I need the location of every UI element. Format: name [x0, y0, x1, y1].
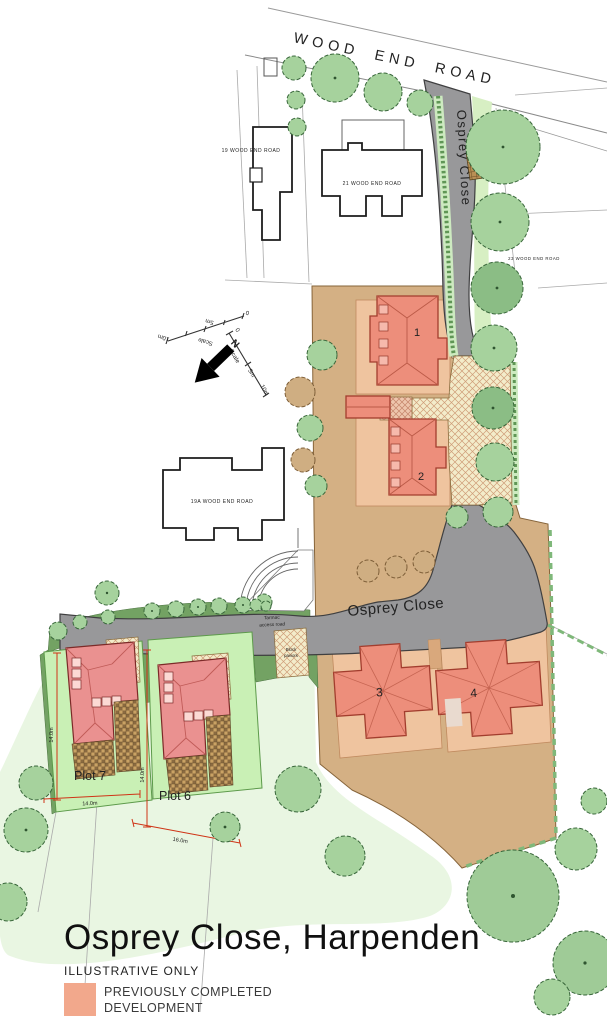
dim-plot7-depth: 14.0m	[49, 727, 55, 743]
tree	[275, 766, 321, 812]
label-21-wood-end-road: 21 WOOD END ROAD	[343, 181, 402, 187]
bush	[250, 599, 262, 611]
label-19-wood-end-road: 19 WOOD END ROAD	[222, 148, 281, 154]
tree	[413, 551, 435, 573]
tree	[407, 90, 433, 116]
legend: PREVIOUSLY COMPLETED DEVELOPMENT	[64, 983, 584, 1017]
bush	[261, 601, 271, 611]
bush	[49, 622, 67, 640]
legend-swatch	[64, 983, 96, 1016]
building-19-porch	[250, 168, 262, 182]
site-plan-page: WOOD END ROAD Osprey Close Osprey Close	[0, 0, 607, 1024]
building-19a	[163, 448, 284, 540]
bush	[101, 610, 115, 624]
title-block: Osprey Close, Harpenden ILLUSTRATIVE ONL…	[64, 918, 584, 1017]
bush	[73, 615, 87, 629]
subtitle: ILLUSTRATIVE ONLY	[64, 964, 584, 978]
plot-6-label: Plot 6	[159, 789, 191, 803]
plot-number-2: 2	[418, 471, 424, 483]
svg-text:5m: 5m	[205, 317, 215, 325]
tree	[325, 836, 365, 876]
svg-text:5m: 5m	[246, 368, 255, 378]
tree	[291, 448, 315, 472]
dim-plot6-depth: 14.0m	[140, 767, 146, 783]
tree	[483, 497, 513, 527]
svg-text:Block: Block	[286, 647, 297, 652]
svg-text:10m: 10m	[157, 332, 170, 341]
plot-number-3: 3	[376, 685, 384, 699]
tree	[285, 377, 315, 407]
bush	[168, 601, 184, 617]
page-title: Osprey Close, Harpenden	[64, 918, 584, 958]
plot-number-1: 1	[414, 327, 420, 339]
building-21	[322, 143, 422, 216]
tree	[307, 340, 337, 370]
house-7	[66, 642, 141, 779]
tree	[287, 91, 305, 109]
svg-text:0: 0	[233, 328, 240, 334]
tree	[385, 556, 407, 578]
tree	[446, 506, 468, 528]
site-plan-drawing: WOOD END ROAD Osprey Close Osprey Close	[0, 0, 607, 1024]
label-19a-wood-end-road: 19A WOOD END ROAD	[191, 499, 253, 505]
bush	[211, 598, 227, 614]
tree	[19, 766, 53, 800]
house-6	[158, 658, 233, 794]
tree	[581, 788, 607, 814]
dim-plot7-width: 14.0m	[82, 801, 98, 808]
svg-text:10m: 10m	[258, 384, 269, 397]
patio-6-side	[206, 715, 233, 787]
svg-text:Scale: Scale	[197, 336, 214, 346]
svg-text:Tarmac: Tarmac	[264, 615, 281, 622]
tree	[555, 828, 597, 870]
tree	[288, 118, 306, 136]
legend-label: PREVIOUSLY COMPLETED DEVELOPMENT	[104, 983, 272, 1017]
building-19	[253, 127, 292, 240]
house-1: 1	[370, 296, 447, 385]
legend-label-line2: DEVELOPMENT	[104, 1000, 272, 1016]
tree	[357, 560, 379, 582]
plot-number-4: 4	[470, 686, 478, 700]
scale-bar-lower-labels: 0 Scale 5m 10m	[228, 328, 270, 398]
tree	[305, 475, 327, 497]
tree	[364, 73, 402, 111]
tree	[282, 56, 306, 80]
legend-label-line1: PREVIOUSLY COMPLETED	[104, 984, 272, 1000]
svg-text:0: 0	[245, 308, 251, 315]
patio-7-side	[114, 700, 141, 772]
label-23-wood-end-road: 23 WOOD END ROAD	[508, 256, 560, 261]
tree	[476, 443, 514, 481]
plot-7-label: Plot 7	[74, 769, 106, 783]
tree	[297, 415, 323, 441]
svg-text:paviors: paviors	[284, 653, 298, 658]
scale-and-north: 0 5m Scale 10m 0 Scale 5m 10m N	[157, 308, 269, 397]
